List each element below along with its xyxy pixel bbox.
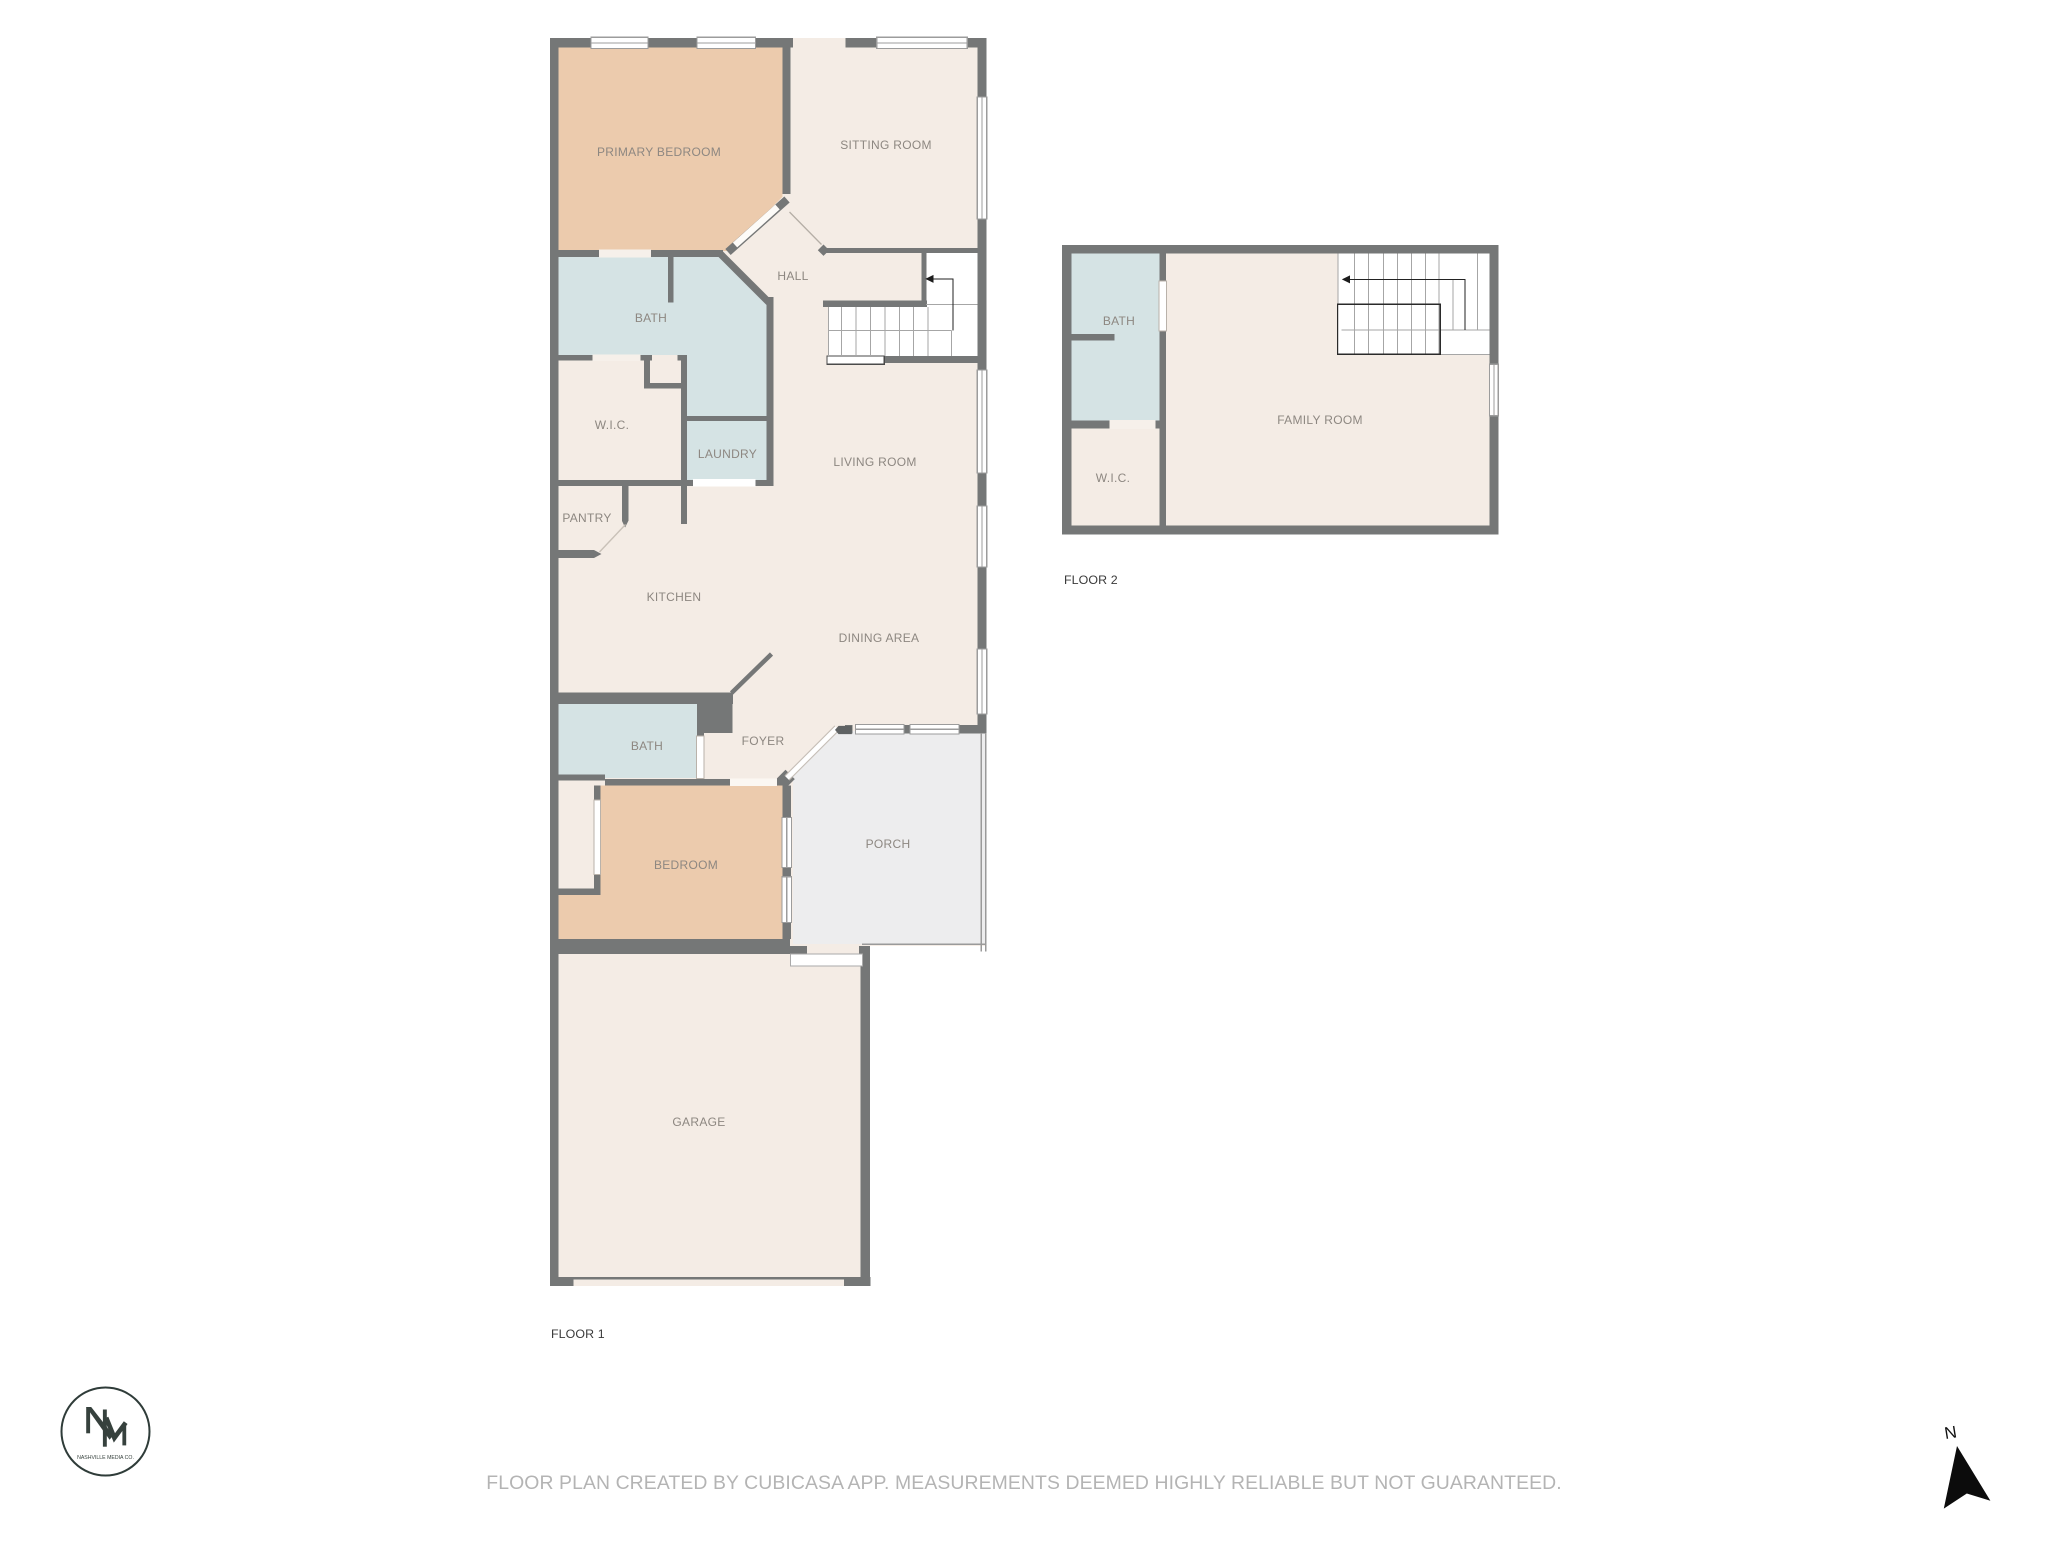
svg-text:PRIMARY BEDROOM: PRIMARY BEDROOM xyxy=(597,145,721,159)
svg-text:BATH: BATH xyxy=(1103,314,1135,328)
svg-text:FLOOR 2: FLOOR 2 xyxy=(1064,573,1118,587)
svg-text:W.I.C.: W.I.C. xyxy=(1096,471,1130,485)
svg-text:DINING AREA: DINING AREA xyxy=(839,631,920,645)
svg-text:FLOOR 1: FLOOR 1 xyxy=(551,1327,605,1341)
svg-text:FOYER: FOYER xyxy=(742,734,785,748)
svg-text:PANTRY: PANTRY xyxy=(562,511,611,525)
svg-text:BATH: BATH xyxy=(631,739,663,753)
svg-text:FLOOR PLAN CREATED BY CUBICASA: FLOOR PLAN CREATED BY CUBICASA APP. MEAS… xyxy=(486,1472,1562,1494)
svg-text:BATH: BATH xyxy=(635,311,667,325)
svg-text:BEDROOM: BEDROOM xyxy=(654,858,718,872)
svg-text:KITCHEN: KITCHEN xyxy=(647,590,702,604)
svg-text:SITTING ROOM: SITTING ROOM xyxy=(840,138,932,152)
svg-text:GARAGE: GARAGE xyxy=(672,1115,725,1129)
svg-text:W.I.C.: W.I.C. xyxy=(595,418,629,432)
svg-text:LIVING ROOM: LIVING ROOM xyxy=(833,455,916,469)
svg-text:PORCH: PORCH xyxy=(866,837,911,851)
svg-text:FAMILY ROOM: FAMILY ROOM xyxy=(1277,413,1363,427)
svg-text:NASHVILLE MEDIA CO.: NASHVILLE MEDIA CO. xyxy=(77,1455,134,1461)
svg-text:HALL: HALL xyxy=(777,269,808,283)
svg-text:LAUNDRY: LAUNDRY xyxy=(698,447,757,461)
